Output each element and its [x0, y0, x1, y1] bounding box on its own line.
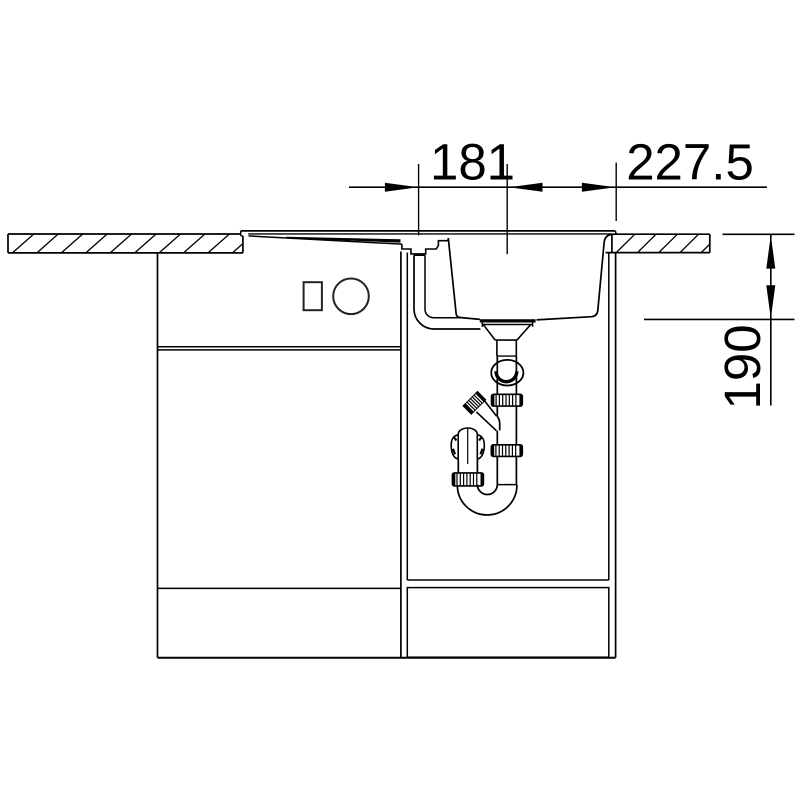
svg-text:227.5: 227.5: [626, 134, 754, 191]
svg-text:181: 181: [430, 134, 515, 191]
svg-text:190: 190: [714, 324, 771, 409]
